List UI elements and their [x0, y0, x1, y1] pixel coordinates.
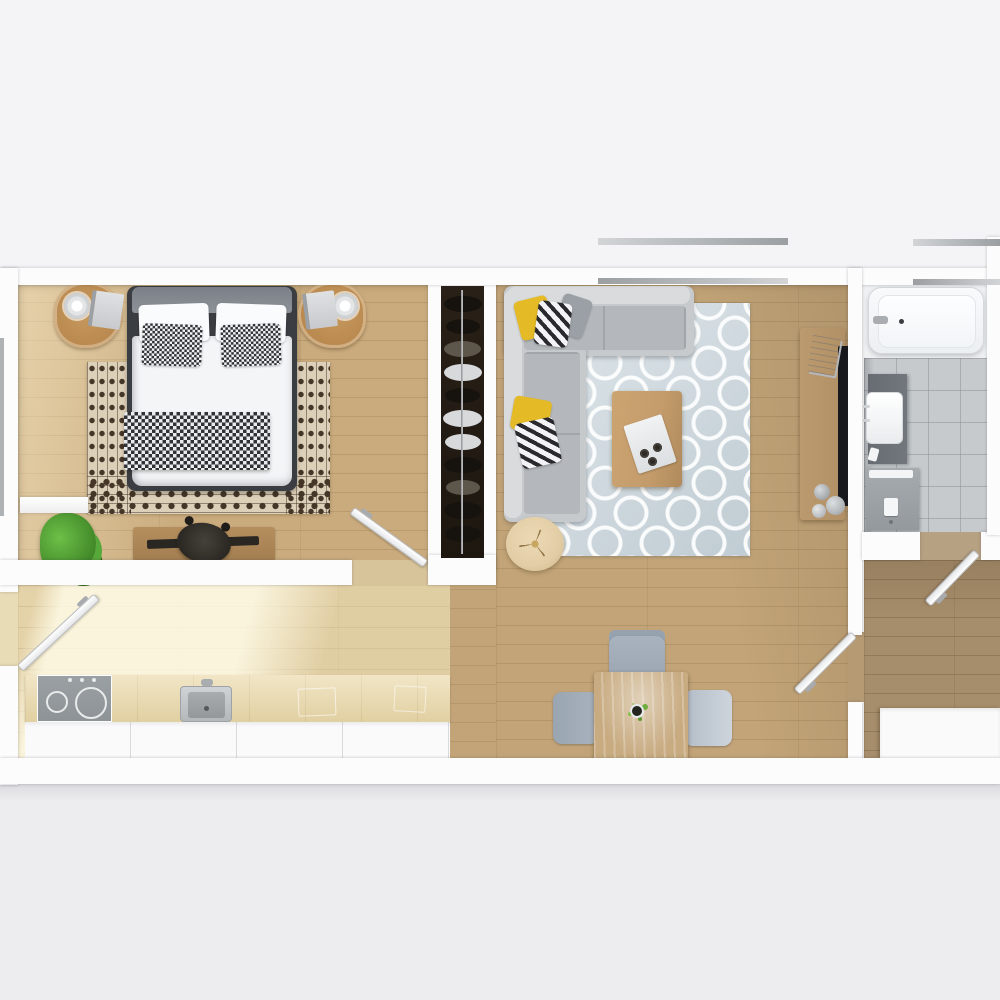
vanity-sink: [866, 392, 903, 444]
cooktop: [37, 675, 112, 722]
ghost-item-outline: [393, 685, 426, 713]
bath-window-outer: [913, 239, 1000, 246]
coffee-table: [612, 391, 682, 487]
table-lamp-icon: [64, 293, 90, 319]
table-plant-icon: [632, 706, 642, 716]
chair-armrest: [184, 515, 194, 525]
vase-icon: [814, 484, 830, 500]
dining-chair-right: [684, 690, 732, 746]
background-bottom: [0, 784, 1000, 1000]
ghost-item-outline: [298, 687, 337, 716]
pillow-check-left: [141, 323, 202, 367]
book-icon: [302, 290, 338, 330]
bath-south-wall-left: [862, 532, 920, 560]
clothes-rail: [461, 290, 463, 554]
bath-window-inner: [913, 279, 1000, 285]
window-shelf: [20, 497, 88, 513]
living-window-outer: [598, 238, 788, 245]
pillow-check-right: [220, 323, 281, 367]
vase-icon: [812, 504, 826, 518]
cup-icon: [653, 443, 662, 452]
burner-large-icon: [75, 687, 107, 719]
cup-icon: [648, 457, 657, 466]
kitchen-cabinet-front: [25, 722, 450, 758]
dining-chair-left: [553, 692, 599, 744]
stove-knob: [92, 678, 96, 682]
vase-icon: [826, 496, 845, 515]
tub-faucet-icon: [873, 316, 888, 324]
closet-interior: [441, 286, 484, 558]
bedroom-south-wall: [0, 560, 352, 585]
living-window-inner: [598, 278, 788, 284]
closet-south-wall: [428, 555, 496, 585]
entry-cabinet: [880, 708, 1000, 758]
sofa-pillow-striped-top: [533, 300, 573, 348]
nightstand-right: [298, 282, 366, 348]
washing-machine: [866, 468, 919, 530]
washer-dial-icon: [889, 520, 893, 524]
sink-tap-icon: [863, 405, 870, 408]
washer-lid: [869, 470, 913, 478]
dining-floor-extension: [450, 570, 496, 758]
kitchen-faucet-icon: [201, 679, 213, 686]
cup-icon: [640, 449, 649, 458]
sink-basin: [188, 692, 225, 718]
sink-drain-icon: [204, 706, 209, 711]
bottom-wall: [0, 758, 1000, 784]
pouf-spokes: [519, 529, 551, 559]
bath-south-wall-right: [981, 532, 1000, 560]
round-pouf: [506, 517, 564, 571]
kitchen-door-threshold: [0, 592, 18, 666]
dining-table: [594, 672, 688, 762]
bedroom-window-left: [0, 338, 4, 516]
floor-plan: [0, 0, 1000, 1000]
living-entry-wall-lower: [848, 702, 862, 760]
bathtub: [868, 287, 984, 354]
foot-blanket: [124, 412, 270, 470]
kitchen-sink: [180, 686, 232, 722]
nightstand-left: [54, 282, 122, 348]
sink-tap-icon: [863, 419, 870, 422]
stove-knob: [68, 678, 72, 682]
tub-basin: [878, 295, 976, 348]
living-entry-wall-upper: [848, 268, 862, 635]
tub-drain-icon: [899, 319, 904, 324]
background-top: [0, 0, 1000, 268]
burner-small-icon: [46, 691, 68, 713]
book-icon: [88, 290, 125, 330]
washer-panel: [884, 498, 898, 516]
stove-knob: [80, 678, 84, 682]
